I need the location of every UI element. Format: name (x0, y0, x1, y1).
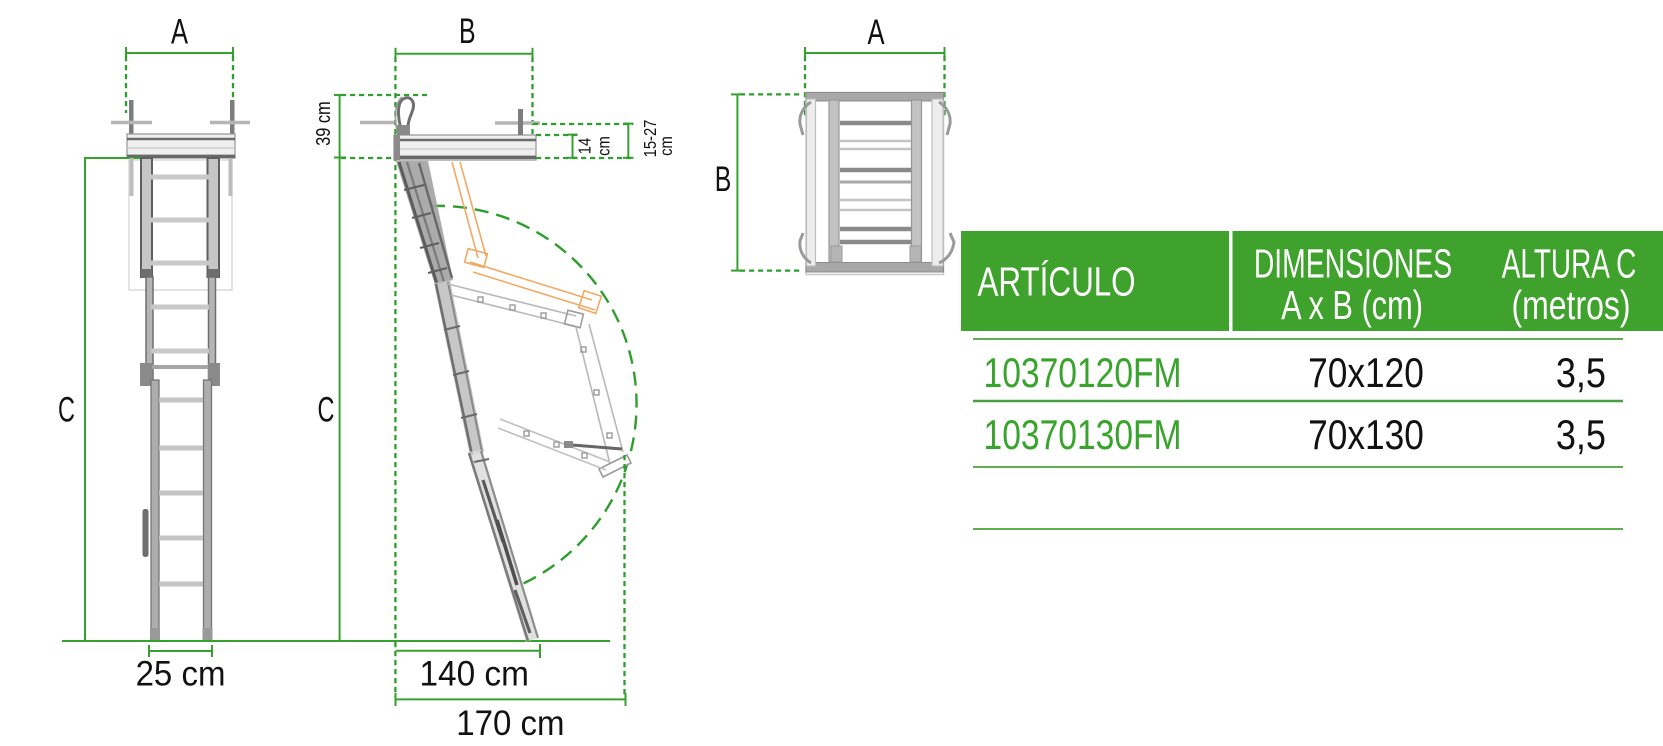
svg-text:DIMENSIONES: DIMENSIONES (1254, 242, 1452, 287)
svg-text:70x120: 70x120 (1308, 350, 1424, 396)
svg-text:3,5: 3,5 (1556, 413, 1606, 459)
svg-text:A: A (171, 11, 188, 51)
svg-text:cm: cm (657, 136, 677, 156)
svg-text:A x B (cm): A x B (cm) (1281, 282, 1423, 328)
svg-text:10370120FM: 10370120FM (984, 351, 1182, 397)
svg-text:B: B (459, 12, 476, 51)
svg-text:C: C (58, 391, 75, 430)
svg-text:A: A (867, 12, 884, 52)
svg-text:140 cm: 140 cm (420, 655, 529, 694)
svg-text:C: C (318, 391, 335, 430)
svg-text:170 cm: 170 cm (456, 704, 564, 743)
svg-text:ARTÍCULO: ARTÍCULO (978, 259, 1136, 305)
svg-text:cm: cm (594, 136, 614, 156)
svg-text:25 cm: 25 cm (136, 654, 226, 693)
svg-text:39 cm: 39 cm (311, 101, 334, 146)
svg-text:(metros): (metros) (1511, 282, 1630, 327)
svg-text:70x130: 70x130 (1308, 412, 1424, 458)
svg-text:14: 14 (575, 138, 595, 154)
svg-text:3,5: 3,5 (1556, 351, 1606, 397)
svg-text:ALTURA C: ALTURA C (1502, 243, 1637, 287)
svg-text:B: B (715, 160, 732, 199)
svg-text:10370130FM: 10370130FM (984, 413, 1182, 459)
